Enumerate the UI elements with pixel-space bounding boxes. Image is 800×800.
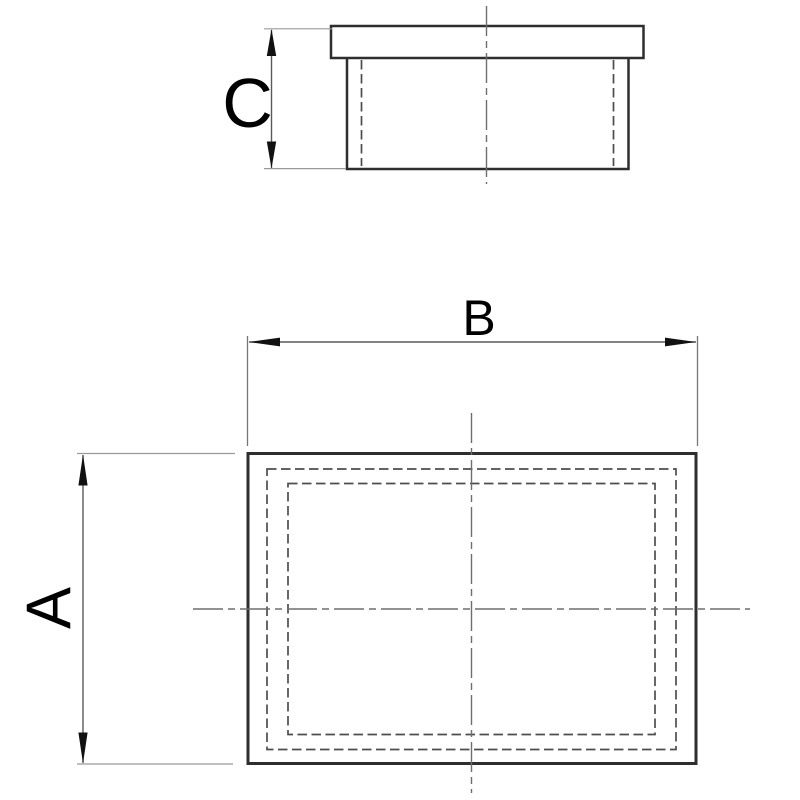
dim-c-arrow-up-icon <box>267 29 276 56</box>
dim-a-label: A <box>14 587 84 629</box>
plan-view: B A <box>14 290 750 793</box>
dim-a-arrow-down-icon <box>78 733 87 764</box>
dim-b-arrow-right-icon <box>665 338 696 347</box>
dimension-b: B <box>248 290 698 446</box>
dim-a-arrow-up-icon <box>78 455 87 486</box>
dim-b-arrow-left-icon <box>249 338 280 347</box>
front-view-flange <box>331 26 644 58</box>
technical-drawing: C B <box>0 0 800 800</box>
drawing-canvas: C B <box>0 0 800 800</box>
dimension-c: C <box>222 29 346 169</box>
dim-b-label: B <box>462 290 495 346</box>
front-view: C <box>222 6 643 184</box>
dim-c-label: C <box>222 64 273 142</box>
front-view-body <box>347 57 629 169</box>
dim-c-arrow-down-icon <box>267 142 276 169</box>
